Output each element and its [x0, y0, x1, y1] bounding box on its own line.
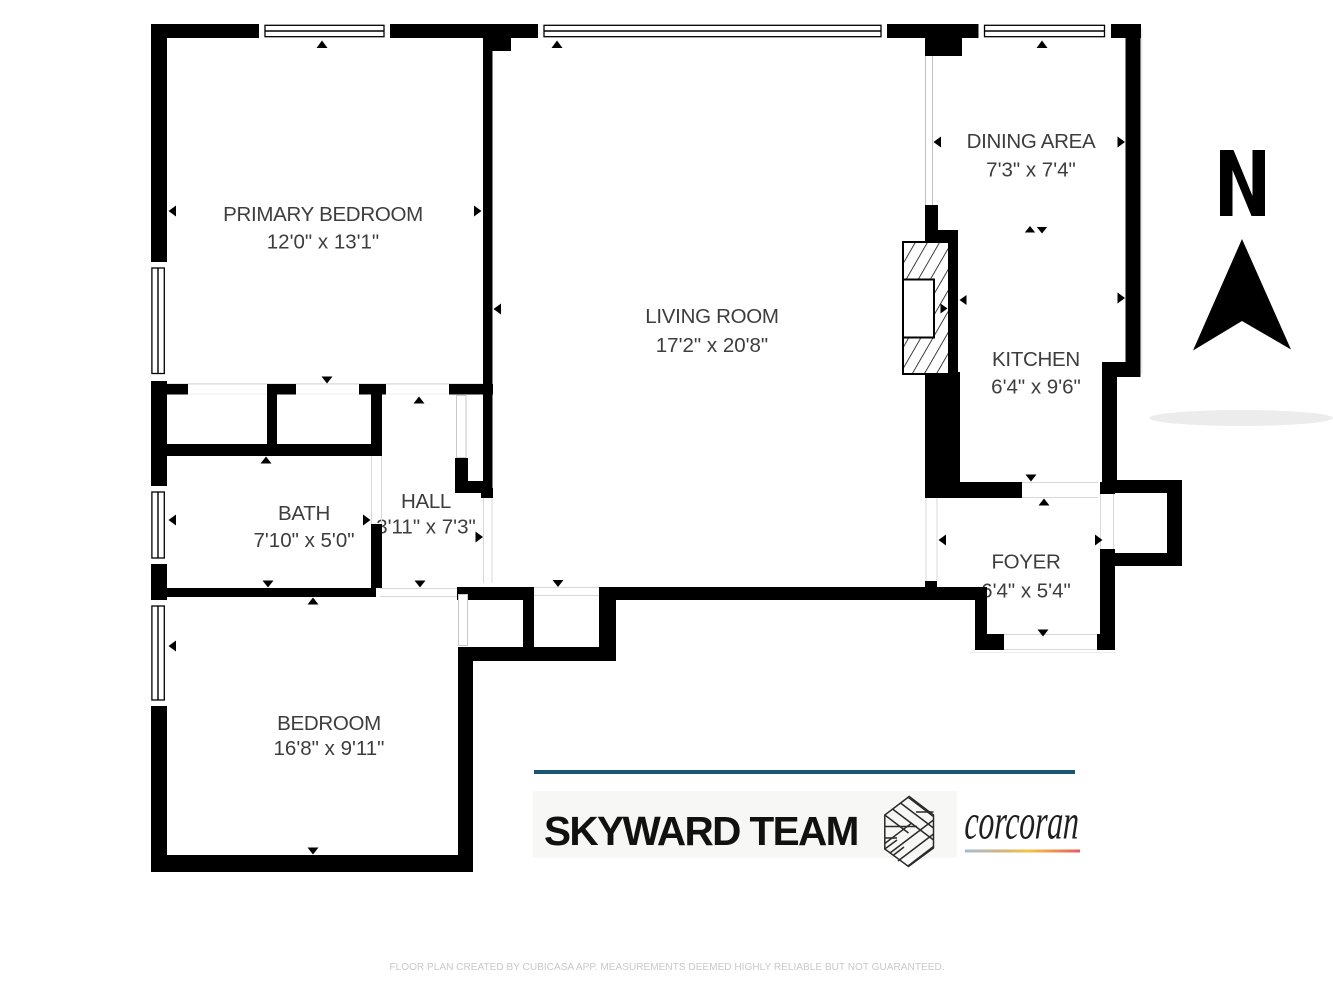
svg-text:BATH: BATH	[278, 502, 330, 525]
svg-text:LIVING ROOM: LIVING ROOM	[645, 305, 778, 328]
svg-text:corcoran: corcoran	[963, 795, 1080, 850]
svg-text:3'11" x 7'3": 3'11" x 7'3"	[376, 516, 476, 539]
svg-text:SKYWARD TEAM: SKYWARD TEAM	[544, 808, 858, 854]
svg-text:7'10" x 5'0": 7'10" x 5'0"	[253, 529, 354, 552]
svg-text:6'4" x 9'6": 6'4" x 9'6"	[991, 376, 1081, 399]
svg-text:FLOOR PLAN CREATED BY CUBICASA: FLOOR PLAN CREATED BY CUBICASA APP. MEAS…	[389, 962, 944, 973]
svg-text:FOYER: FOYER	[991, 551, 1060, 574]
svg-text:BEDROOM: BEDROOM	[277, 712, 381, 735]
svg-text:KITCHEN: KITCHEN	[992, 348, 1080, 371]
svg-text:DINING AREA: DINING AREA	[967, 130, 1096, 153]
svg-text:7'3" x 7'4": 7'3" x 7'4"	[986, 159, 1076, 182]
svg-text:16'8" x 9'11": 16'8" x 9'11"	[274, 737, 385, 760]
svg-text:PRIMARY BEDROOM: PRIMARY BEDROOM	[223, 203, 423, 226]
svg-text:6'4" x 5'4": 6'4" x 5'4"	[981, 580, 1071, 603]
svg-text:12'0" x 13'1": 12'0" x 13'1"	[267, 231, 379, 254]
svg-text:17'2" x 20'8": 17'2" x 20'8"	[656, 334, 768, 357]
svg-text:HALL: HALL	[401, 490, 451, 513]
